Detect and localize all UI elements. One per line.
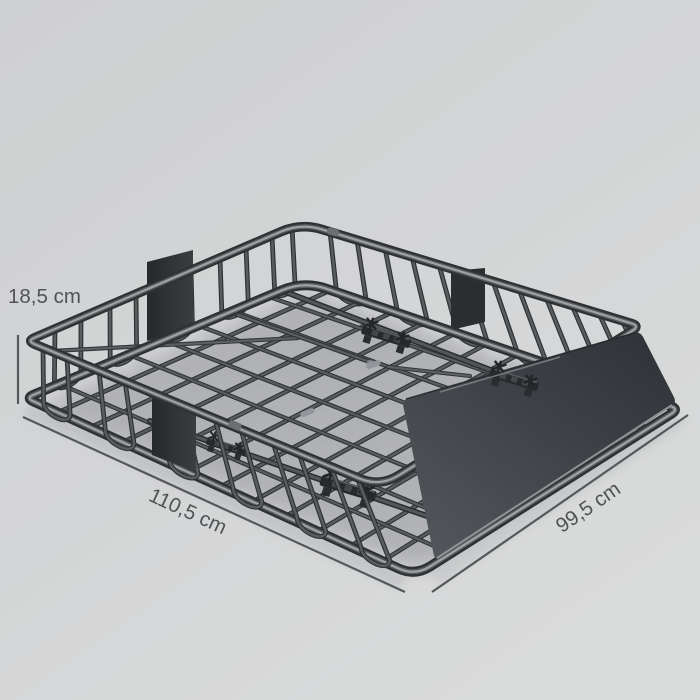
svg-text:18,5 cm: 18,5 cm [8,285,81,308]
